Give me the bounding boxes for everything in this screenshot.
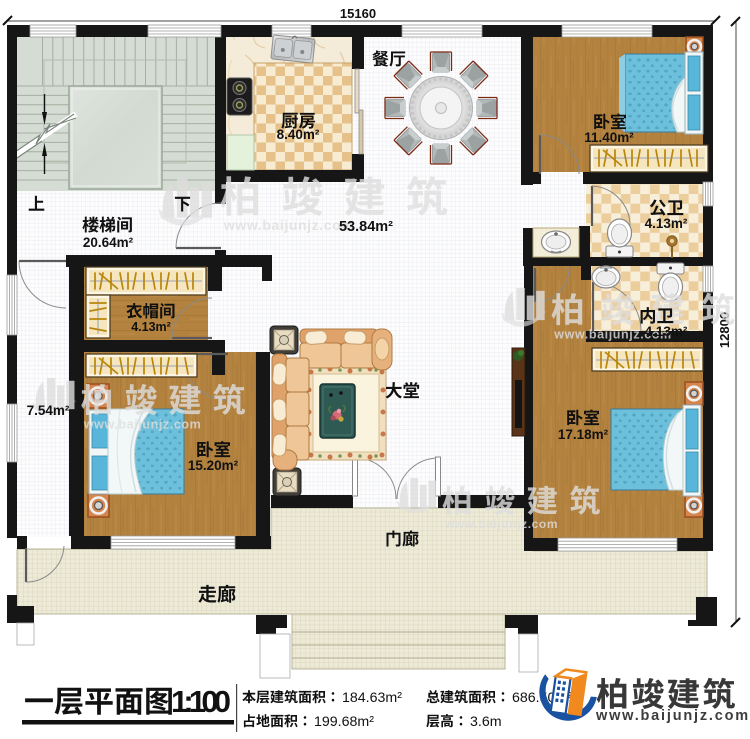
svg-text:www.baijunjz.com: www.baijunjz.com bbox=[223, 217, 354, 233]
svg-text:8.40m²: 8.40m² bbox=[277, 127, 320, 142]
svg-text:7.54m²: 7.54m² bbox=[27, 403, 70, 418]
svg-text:11.40m²: 11.40m² bbox=[584, 130, 634, 145]
svg-text:www.baijunjz.com: www.baijunjz.com bbox=[444, 517, 558, 531]
svg-text:15160: 15160 bbox=[340, 6, 376, 21]
svg-text:15.20m²: 15.20m² bbox=[188, 458, 239, 473]
svg-text:www.baijunjz.com: www.baijunjz.com bbox=[595, 708, 750, 724]
svg-text:199.68m²: 199.68m² bbox=[314, 714, 374, 730]
svg-text:3.6m: 3.6m bbox=[470, 714, 502, 730]
svg-text:4.13m²: 4.13m² bbox=[131, 320, 171, 334]
svg-text:53.84m²: 53.84m² bbox=[339, 219, 393, 235]
svg-text:17.18m²: 17.18m² bbox=[558, 427, 609, 442]
svg-text:1:100: 1:100 bbox=[171, 684, 231, 719]
svg-text:184.63m²: 184.63m² bbox=[342, 690, 402, 706]
svg-text:www.baijunjz.com: www.baijunjz.com bbox=[83, 418, 201, 432]
svg-text:20.64m²: 20.64m² bbox=[83, 235, 134, 250]
svg-text:4.13m²: 4.13m² bbox=[645, 216, 688, 231]
svg-text:4.13m²: 4.13m² bbox=[645, 324, 688, 339]
